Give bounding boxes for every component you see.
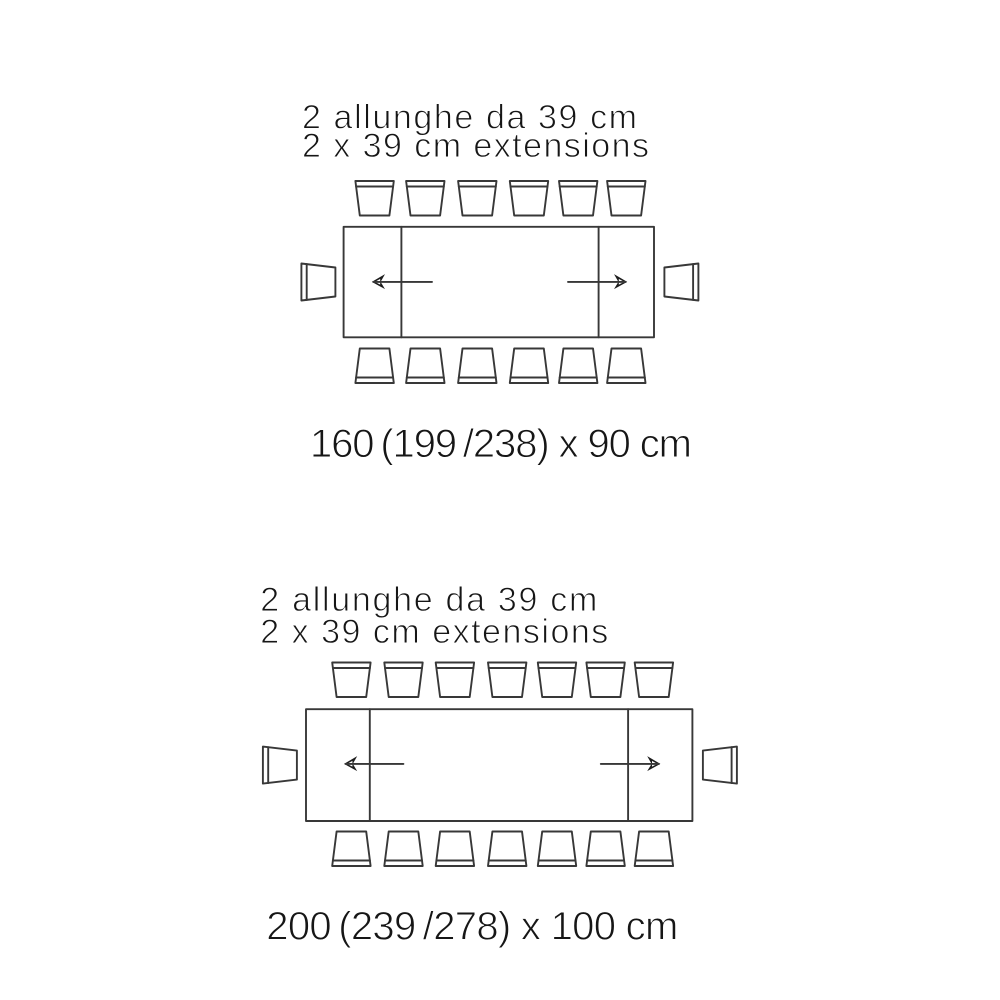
svg-text:160 (199 /238) x 90 cm: 160 (199 /238) x 90 cm <box>310 422 692 466</box>
svg-text:200 (239 /278) x 100 cm: 200 (239 /278) x 100 cm <box>266 905 678 949</box>
svg-text:2 x 39 cm extensions: 2 x 39 cm extensions <box>260 613 608 651</box>
svg-text:2 x 39 cm extensions: 2 x 39 cm extensions <box>302 127 649 165</box>
